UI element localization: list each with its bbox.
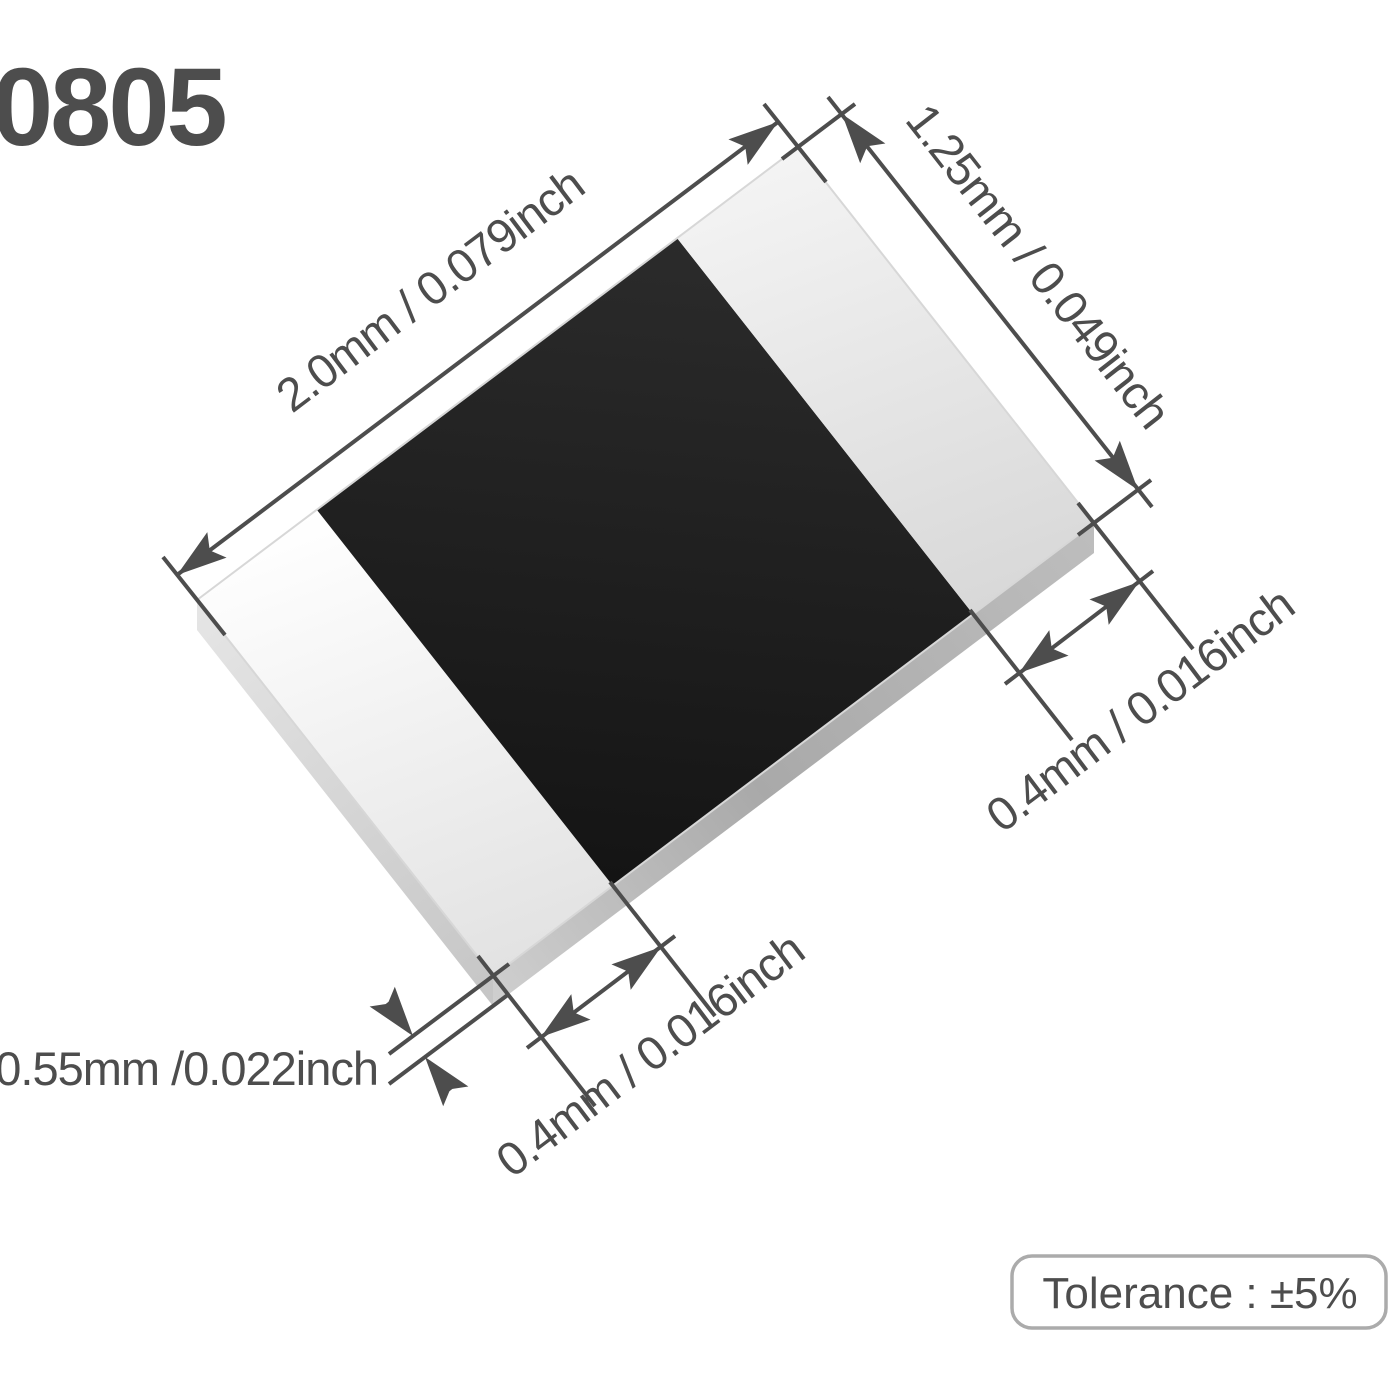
extension-line: [1078, 480, 1151, 535]
arrowhead: [829, 104, 885, 163]
tolerance-box: Tolerance : ±5%: [1012, 1256, 1386, 1328]
arrowhead: [611, 934, 670, 990]
extension-line: [782, 104, 855, 159]
arrowhead: [167, 532, 226, 588]
arrowhead: [1089, 569, 1148, 625]
tolerance-label: Tolerance : ±5%: [1042, 1269, 1357, 1318]
arrowhead: [1009, 630, 1068, 686]
arrowhead: [531, 994, 590, 1050]
part-number-label: 0805: [0, 46, 226, 169]
arrowhead: [370, 987, 426, 1046]
smd-resistor-dimension-diagram: 2.0mm / 0.079inch 1.25mm / 0.049inch 0.4…: [0, 0, 1393, 1393]
extension-line: [1078, 503, 1193, 649]
dim-cap-right-label: 0.4mm / 0.016inch: [976, 577, 1303, 842]
arrowhead: [728, 109, 787, 165]
dim-thickness: 0.55mm /0.022inch: [0, 964, 509, 1106]
chip-resistor: [197, 147, 1094, 1006]
diagram-canvas: 2.0mm / 0.079inch 1.25mm / 0.049inch 0.4…: [0, 0, 1393, 1393]
arrowhead: [1095, 441, 1151, 500]
extension-line: [970, 610, 1072, 740]
arrowhead: [412, 1047, 468, 1106]
dim-thickness-label: 0.55mm /0.022inch: [0, 1042, 378, 1095]
